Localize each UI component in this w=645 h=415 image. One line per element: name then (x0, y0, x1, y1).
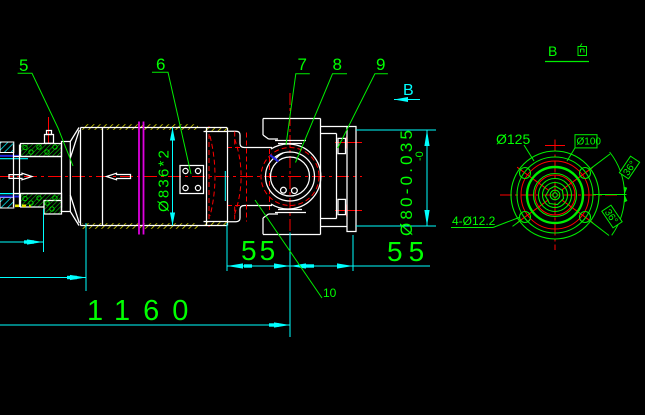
svg-text:55: 55 (387, 236, 430, 267)
svg-text:B: B (403, 82, 414, 99)
svg-text:10: 10 (323, 286, 337, 300)
svg-text:6: 6 (156, 55, 165, 74)
svg-text:Ø836*2: Ø836*2 (156, 148, 173, 212)
svg-text:B: B (548, 43, 557, 59)
svg-text:7: 7 (298, 55, 307, 74)
svg-text:9: 9 (376, 55, 385, 74)
svg-text:Ø125: Ø125 (496, 131, 530, 147)
svg-text:5: 5 (19, 56, 28, 75)
svg-text:8: 8 (333, 55, 342, 74)
svg-text:Ø80-0.035: Ø80-0.035 (397, 127, 416, 236)
svg-text:1160: 1160 (87, 295, 201, 327)
svg-text:-0: -0 (414, 151, 426, 161)
svg-text:Ø100: Ø100 (577, 137, 602, 148)
svg-text:4-Ø12.2: 4-Ø12.2 (452, 214, 496, 228)
svg-text:55: 55 (241, 235, 278, 266)
